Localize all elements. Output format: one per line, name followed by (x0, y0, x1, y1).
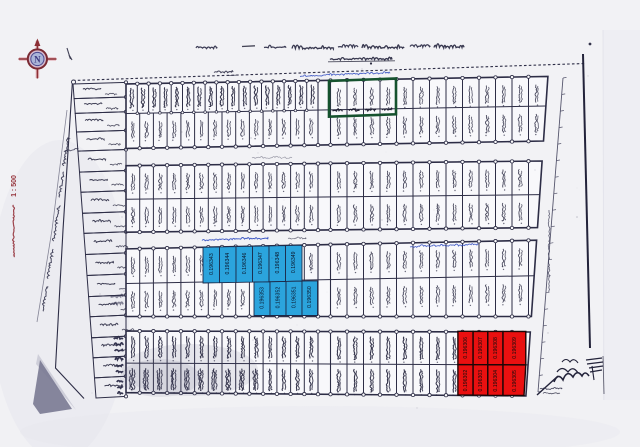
svg-text:0.196346: 0.196346 (242, 252, 248, 274)
svg-text:1 : 500: 1 : 500 (11, 175, 18, 197)
svg-text:0.196307: 0.196307 (478, 337, 484, 359)
svg-text:0.196308: 0.196308 (493, 337, 499, 359)
svg-text:0.196352: 0.196352 (276, 287, 282, 309)
svg-text:0.196350: 0.196350 (307, 286, 313, 308)
svg-text:0.196303: 0.196303 (478, 370, 484, 392)
svg-text:0.196306: 0.196306 (463, 337, 469, 359)
svg-text:0.196351: 0.196351 (292, 286, 298, 308)
svg-text:0.196349: 0.196349 (291, 251, 297, 273)
svg-text:N: N (34, 55, 41, 65)
svg-text:0.196348: 0.196348 (275, 252, 281, 274)
svg-text:0.196309: 0.196309 (512, 337, 518, 359)
svg-text:0.196304: 0.196304 (493, 370, 499, 392)
svg-text:0.196305: 0.196305 (512, 370, 518, 392)
svg-text:0.196353: 0.196353 (260, 287, 266, 309)
svg-text:0.196347: 0.196347 (258, 252, 264, 274)
svg-text:0.196343: 0.196343 (209, 253, 215, 275)
svg-text:0.196344: 0.196344 (225, 253, 231, 275)
svg-text:0.196302: 0.196302 (463, 370, 469, 392)
